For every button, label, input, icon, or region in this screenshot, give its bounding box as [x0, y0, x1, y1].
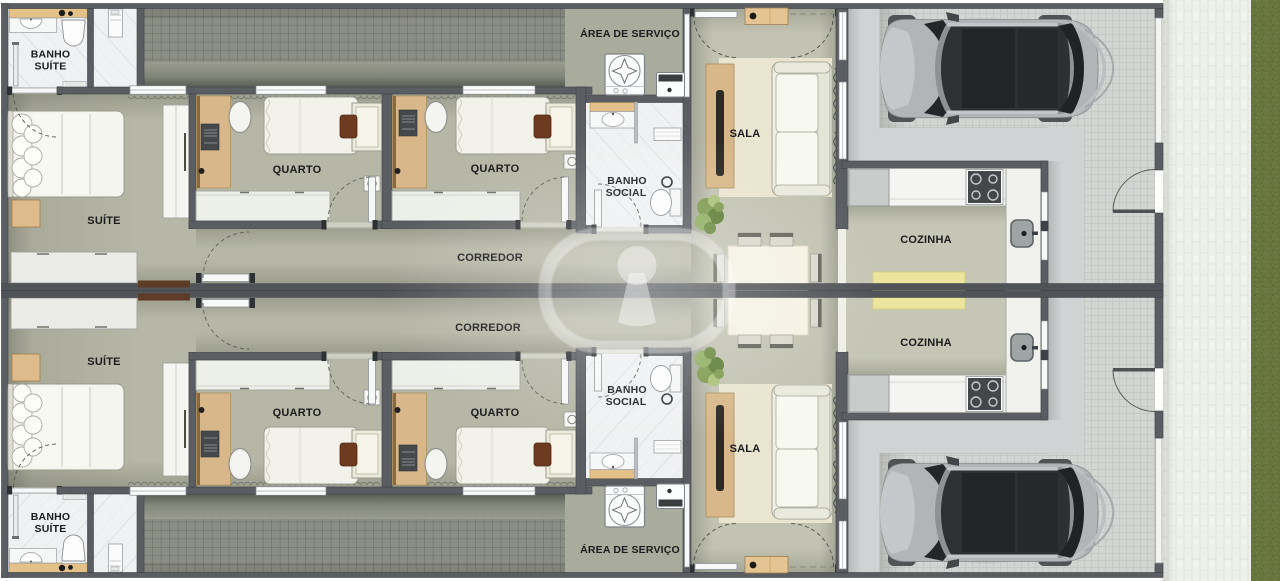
svg-text:BANHO: BANHO — [31, 511, 71, 523]
svg-text:COZINHA: COZINHA — [900, 337, 952, 349]
svg-text:SUÍTE: SUÍTE — [35, 522, 67, 535]
svg-text:SALA: SALA — [730, 443, 761, 455]
svg-text:SUÍTE: SUÍTE — [35, 60, 67, 73]
svg-text:SUÍTE: SUÍTE — [87, 355, 120, 368]
svg-text:SUÍTE: SUÍTE — [87, 214, 120, 227]
svg-text:BANHO: BANHO — [31, 49, 71, 61]
svg-text:COZINHA: COZINHA — [900, 234, 952, 246]
svg-text:QUARTO: QUARTO — [273, 407, 322, 419]
svg-text:SALA: SALA — [730, 128, 761, 140]
svg-text:ÁREA DE SERVIÇO: ÁREA DE SERVIÇO — [580, 27, 680, 40]
svg-text:QUARTO: QUARTO — [273, 164, 322, 176]
svg-text:ÁREA DE SERVIÇO: ÁREA DE SERVIÇO — [580, 543, 680, 556]
